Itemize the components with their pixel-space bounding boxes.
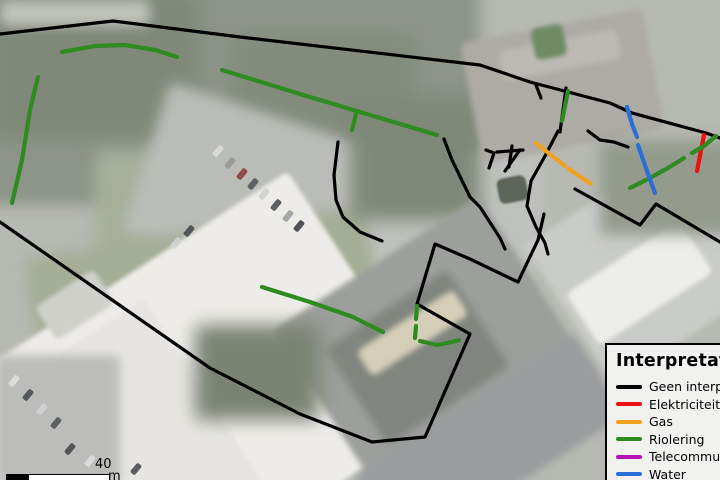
legend-item-label: Telecommunicatie — [649, 449, 720, 464]
utility-line-water-line-2 — [638, 145, 655, 193]
utility-line-sewer-dash-v2 — [415, 326, 416, 338]
legend-item: Water — [616, 466, 720, 480]
utility-line-electricity-east — [697, 135, 704, 171]
legend-item-label: Elektriciteit — [649, 397, 720, 412]
utility-line-sewer-west — [12, 77, 38, 203]
legend-item: Elektriciteit — [616, 396, 720, 414]
utility-line-sewer-long-diag — [222, 70, 437, 135]
utility-line-site-boundary — [0, 214, 544, 442]
legend-items: Geen interpretatie Elektriciteit Gas Rio… — [616, 378, 720, 480]
utility-line-zigzag-east — [575, 189, 720, 242]
utility-line-boundary-north — [0, 21, 720, 138]
legend-item: Telecommunicatie — [616, 448, 720, 466]
utility-line-service-wave — [588, 131, 628, 147]
legend-swatch — [616, 437, 642, 441]
legend-swatch — [616, 420, 642, 424]
legend-panel: Interpretatie Geen interpretatie Elektri… — [605, 343, 720, 480]
legend-swatch — [616, 402, 642, 406]
utility-line-sewer-diag-tick — [352, 114, 356, 130]
legend-swatch — [616, 385, 642, 389]
utility-line-sewer-arc-east-1 — [630, 158, 684, 188]
utility-line-gas-line-2 — [569, 169, 591, 184]
utility-map: 40 m Interpretatie Geen interpretatie El… — [0, 0, 720, 480]
utility-line-north-tick — [536, 85, 541, 98]
legend-item-label: Geen interpretatie — [649, 379, 720, 394]
utility-line-sewer-dash-v1 — [416, 306, 417, 319]
utility-line-building-line — [444, 139, 505, 249]
legend-item-label: Water — [649, 467, 686, 480]
utility-line-sewer-park-curve — [62, 45, 177, 57]
utility-line-sewer-on-service — [562, 91, 568, 121]
utility-line-sewer-dash-h — [420, 340, 459, 345]
legend-item: Geen interpretatie — [616, 378, 720, 396]
legend-item-label: Riolering — [649, 432, 704, 447]
utility-line-sewer-mid — [262, 287, 383, 332]
legend-item: Gas — [616, 413, 720, 431]
scale-bar-black-segment — [7, 475, 29, 480]
legend-swatch — [616, 455, 642, 459]
scale-bar-outline-segment — [6, 474, 110, 480]
utility-line-service-d — [486, 150, 494, 168]
legend-title: Interpretatie — [616, 351, 720, 371]
legend-item: Riolering — [616, 431, 720, 449]
scale-bar: 40 m — [0, 456, 200, 480]
utility-line-curve-center — [334, 142, 382, 241]
legend-swatch — [616, 472, 642, 476]
legend-item-label: Gas — [649, 414, 673, 429]
